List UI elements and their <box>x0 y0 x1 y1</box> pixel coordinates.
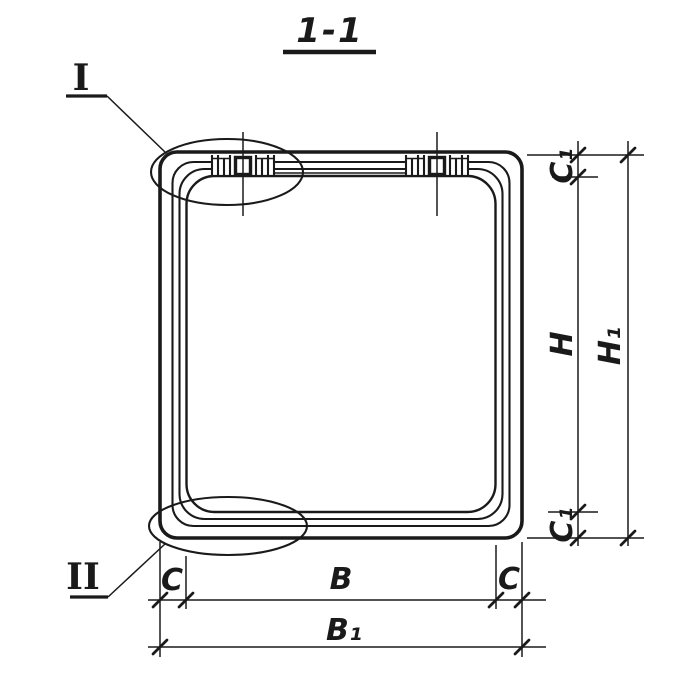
dim-label-c1-bottom: C₁ <box>545 507 580 542</box>
callout-detail-1: I <box>66 57 165 152</box>
drawing-sheet: 1-1 <box>0 0 700 700</box>
horizontal-dimensions: C B C B₁ <box>148 542 546 657</box>
dim-label-h1: H₁ <box>593 327 628 365</box>
dim-label-c-right: C <box>498 562 520 597</box>
callout-1-label: I <box>73 57 90 99</box>
box-inner-line-3 <box>187 176 496 512</box>
box-inner-line-1 <box>173 162 510 526</box>
dim-label-b: B <box>330 562 353 597</box>
box-outer-contour <box>160 152 522 538</box>
callout-2-label: II <box>66 556 100 598</box>
dim-label-h: H <box>545 331 580 356</box>
callout-2-leader <box>108 544 165 597</box>
section-title: 1-1 <box>296 11 363 51</box>
dim-label-b1: B₁ <box>326 613 362 648</box>
dim-label-c1-top: C₁ <box>545 148 580 183</box>
dim-label-c-left: C <box>161 563 183 598</box>
box-inner-line-2 <box>180 169 503 519</box>
vertical-dimensions: C₁ H C₁ H₁ <box>527 141 644 546</box>
lid-joint-right <box>405 132 469 216</box>
callout-1-leader <box>107 96 165 152</box>
section-drawing: 1-1 <box>0 0 700 700</box>
callout-detail-2: II <box>66 544 165 598</box>
